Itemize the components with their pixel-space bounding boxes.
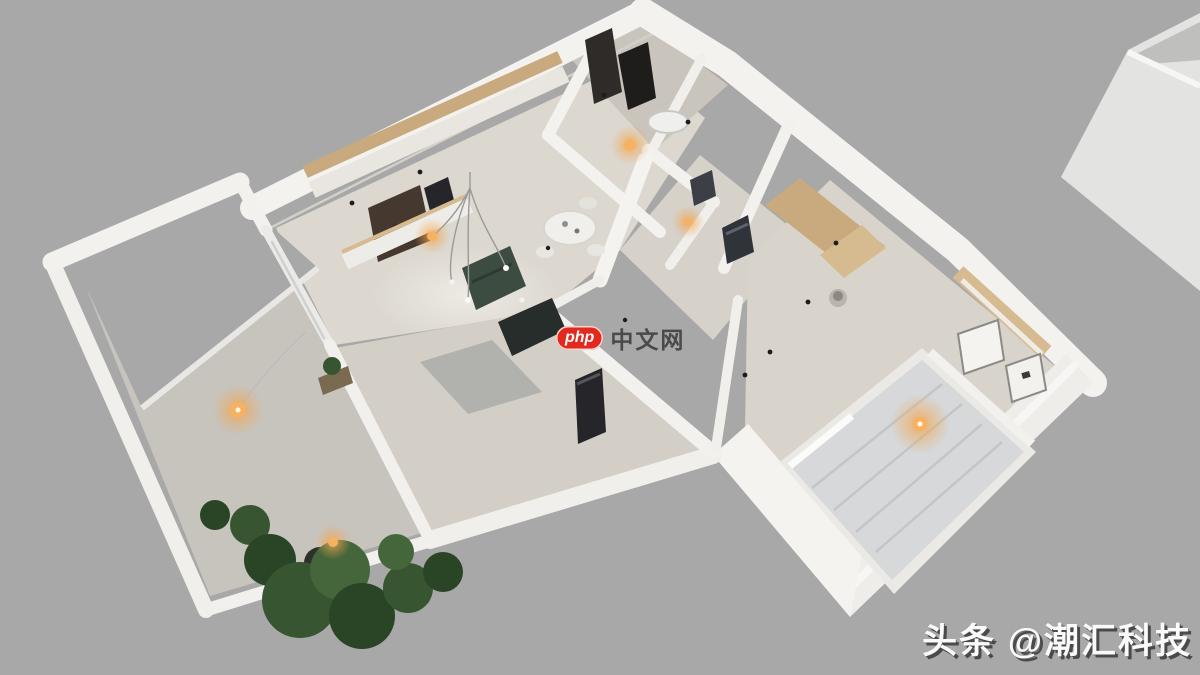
watermark-php: php 中文网	[556, 321, 685, 355]
light-hotspot	[918, 422, 923, 427]
floorplan-render-canvas: php 中文网 头条 @潮汇科技	[0, 0, 1200, 675]
chandelier-bulb	[465, 297, 471, 303]
dining-chair	[587, 244, 605, 256]
light-core	[624, 139, 636, 151]
ledge-plant	[323, 357, 341, 375]
plant	[378, 534, 414, 570]
dining-chair	[536, 246, 554, 258]
light-core	[684, 218, 692, 226]
light-core	[328, 537, 338, 547]
chandelier-bulb	[519, 297, 524, 302]
light-hotspot	[236, 408, 241, 413]
chandelier-bulb	[503, 265, 509, 271]
table-decor	[575, 229, 580, 234]
dining-chair	[579, 197, 597, 209]
plant	[200, 500, 230, 530]
chandelier-bulb	[449, 279, 454, 284]
table-decor	[562, 221, 568, 227]
php-logo-badge: php	[556, 326, 603, 350]
plant	[423, 552, 463, 592]
desk-chair-seat	[833, 291, 843, 301]
light-core	[427, 231, 437, 241]
bathtub	[648, 111, 688, 133]
watermark-php-label: 中文网	[610, 321, 685, 355]
dining-table-top	[544, 211, 596, 245]
watermark-toutiao: 头条 @潮汇科技	[922, 613, 1192, 664]
